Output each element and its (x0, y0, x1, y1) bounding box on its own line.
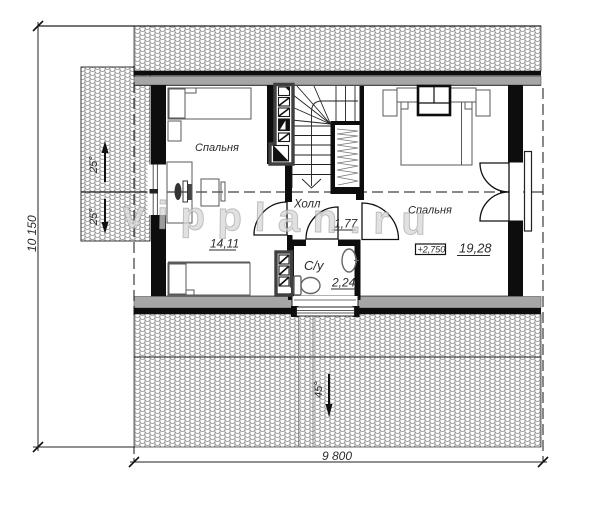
svg-text:45°: 45° (313, 381, 325, 398)
svg-text:25°: 25° (88, 156, 100, 174)
svg-text:Спальня: Спальня (195, 142, 239, 154)
svg-text:С/у: С/у (304, 258, 325, 273)
svg-text:2,24: 2,24 (331, 276, 356, 290)
svg-text:19,28: 19,28 (459, 241, 492, 256)
svg-text:9 800: 9 800 (322, 449, 352, 463)
svg-text:vipplan.ru: vipplan.ru (122, 193, 439, 244)
svg-text:25°: 25° (88, 208, 100, 226)
svg-text:+2,750: +2,750 (418, 245, 446, 255)
svg-text:10 150: 10 150 (25, 215, 39, 252)
